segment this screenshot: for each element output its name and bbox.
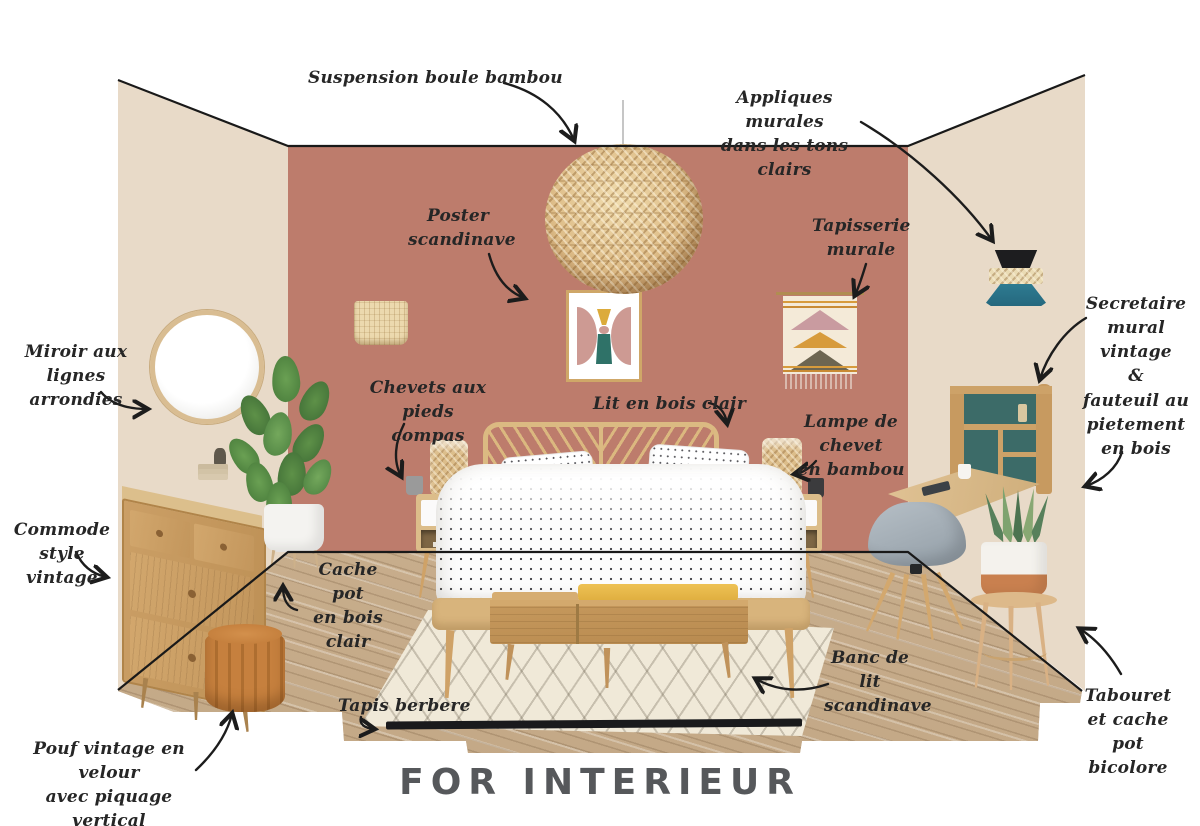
label-cache-pot: Cache pot en bois clair — [300, 558, 396, 655]
label-lampe: Lampe de chevet en bambou — [788, 410, 914, 482]
arrow-suspension — [504, 83, 574, 140]
label-poster: Poster scandinave — [408, 204, 508, 252]
label-tapis: Tapis berbere — [338, 694, 471, 718]
label-chevets: Chevets aux pieds compas — [358, 376, 498, 448]
arrow-cache-pot — [283, 587, 297, 610]
label-appliques: Appliques murales dans les tons clairs — [702, 86, 867, 183]
arrow-tabouret — [1080, 629, 1121, 674]
moodboard-scene: Suspension boule bambou Appliques murale… — [0, 0, 1200, 826]
brand-logo: FOR INTERIEUR — [0, 762, 1200, 803]
label-banc: Banc de lit scandinave — [824, 646, 916, 718]
label-secretaire: Secretaire mural vintage & fauteuil au p… — [1078, 292, 1194, 461]
arrow-banc — [756, 679, 828, 690]
label-suspension: Suspension boule bambou — [308, 66, 563, 90]
arrow-poster — [489, 254, 524, 298]
arrow-tapis — [361, 717, 374, 729]
label-commode: Commode style vintage — [12, 518, 112, 590]
label-miroir: Miroir aux lignes arrondies — [6, 340, 146, 412]
label-tapisserie: Tapisserie murale — [812, 214, 910, 262]
label-lit: Lit en bois clair — [593, 392, 746, 416]
arrow-tapisserie — [855, 264, 866, 295]
